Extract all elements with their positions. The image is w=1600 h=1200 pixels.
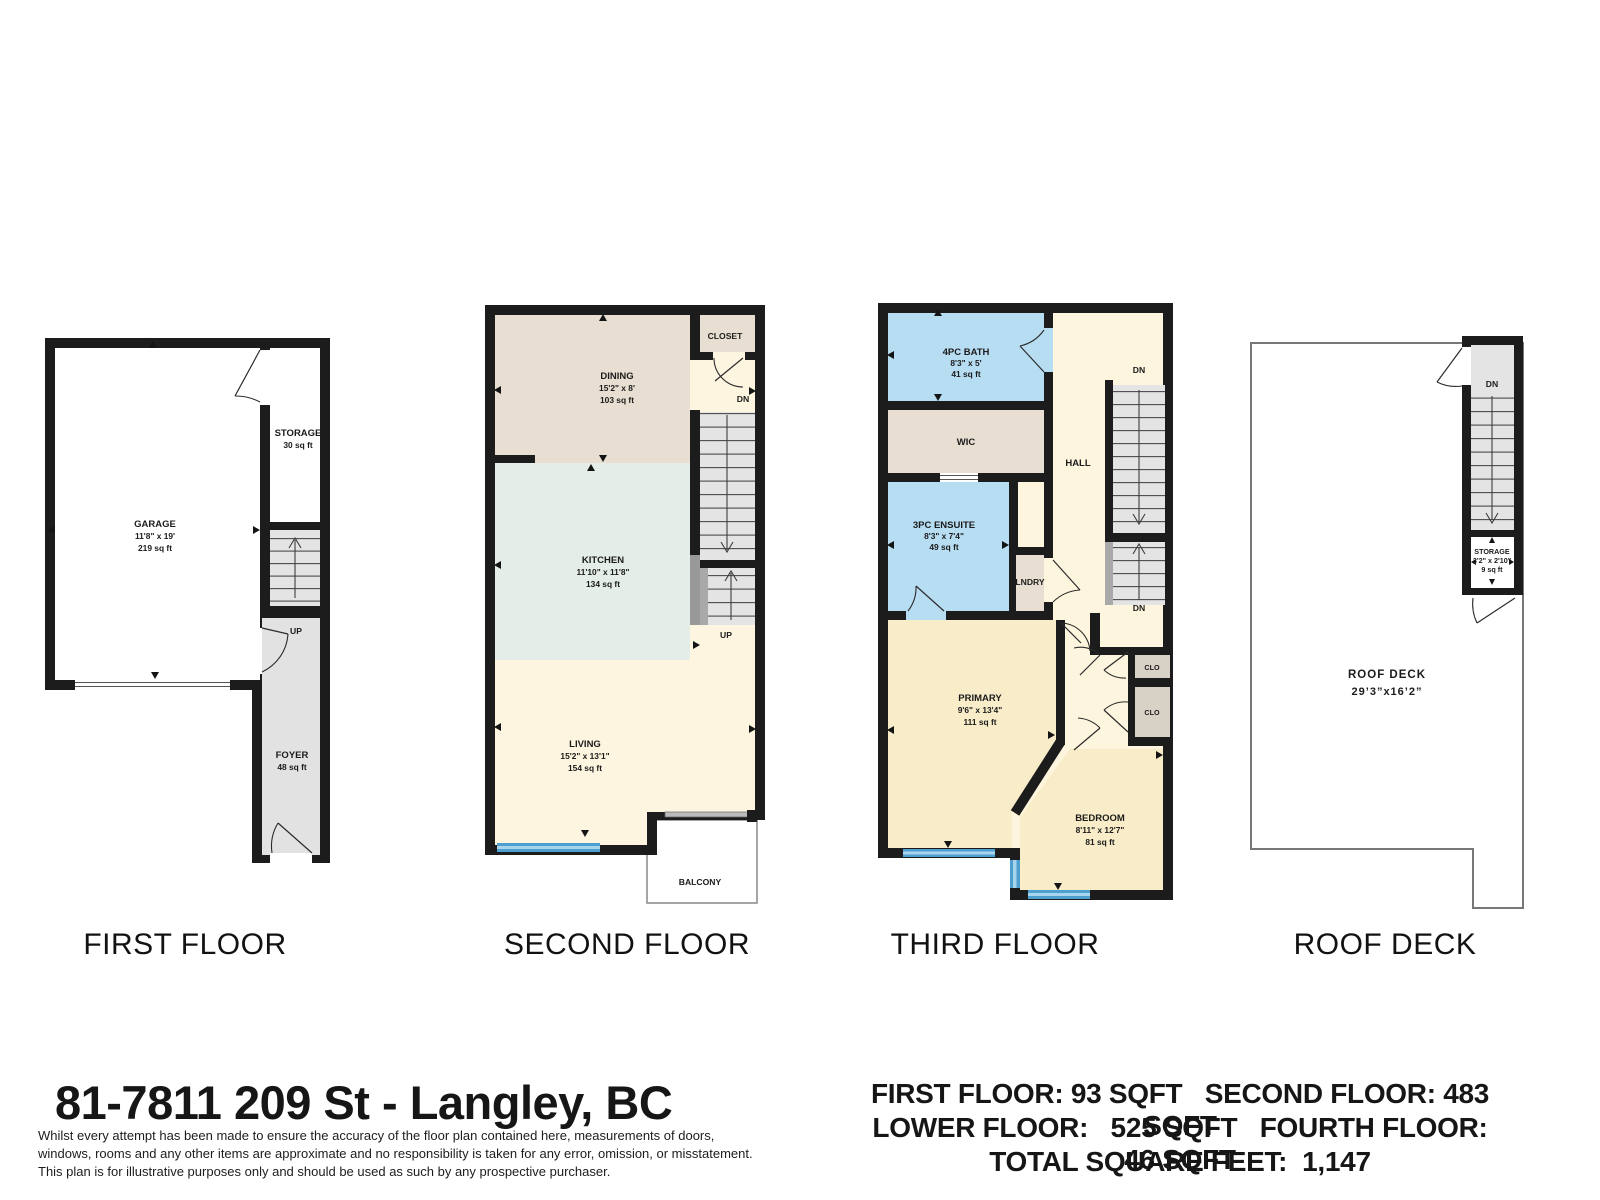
floor-plan-page: { "colors": { "wall": "#1c1c1c", "dining… xyxy=(0,0,1600,1200)
third-floor-title: THIRD FLOOR xyxy=(825,928,1165,962)
kitchen-label: KITCHEN xyxy=(582,555,624,566)
laundry-door-opening xyxy=(1044,558,1053,602)
property-address: 81-7811 209 St - Langley, BC xyxy=(55,1075,672,1130)
window xyxy=(497,846,600,849)
bath-area: 41 sq ft xyxy=(951,369,981,379)
roof-deck-title: ROOF DECK xyxy=(1215,928,1555,962)
garage-label: GARAGE xyxy=(134,519,176,530)
storage-area: 30 sq ft xyxy=(283,440,313,450)
foyer-room xyxy=(262,618,320,855)
closet-wall xyxy=(1128,737,1173,746)
interior-wall xyxy=(1100,647,1173,655)
up-label: UP xyxy=(290,626,302,636)
garage-area: 219 sq ft xyxy=(138,543,172,553)
roof-deck-label: ROOF DECK xyxy=(1348,669,1426,681)
laundry-label: LNDRY xyxy=(1015,577,1045,587)
stair-edge xyxy=(1105,542,1113,605)
bedroom-area: 81 sq ft xyxy=(1085,837,1115,847)
wic-slider-opening xyxy=(940,473,978,482)
interior-wall xyxy=(1009,482,1018,555)
kitchen-dims: 11'10" x 11'8" xyxy=(577,567,630,577)
bath-dims: 8'3" x 5' xyxy=(950,358,981,368)
roof-deck-dims: 29’3”x16’2” xyxy=(1352,686,1423,698)
window xyxy=(903,852,995,855)
primary-label: PRIMARY xyxy=(958,693,1002,704)
living-area: 154 sq ft xyxy=(568,763,602,773)
garage-dims: 11'8" x 19' xyxy=(135,531,175,541)
roof-storage-dims: 3'2" x 2'10" xyxy=(1473,556,1511,565)
dn-label: DN xyxy=(737,394,749,404)
closet-door-opening xyxy=(713,352,745,360)
stair-wall xyxy=(1105,533,1165,542)
foyer-area: 48 sq ft xyxy=(277,762,307,772)
kitchen-area: 134 sq ft xyxy=(586,579,620,589)
balcony xyxy=(647,820,757,903)
storage-label: STORAGE xyxy=(275,428,322,439)
stair-wall xyxy=(700,560,755,568)
first-floor-plan: GARAGE 11'8" x 19' 219 sq ft STORAGE 30 … xyxy=(45,338,330,863)
stair-edge xyxy=(690,555,700,625)
garage-room xyxy=(55,348,260,680)
interior-wall xyxy=(888,401,1044,410)
roof-storage-area: 9 sq ft xyxy=(1481,565,1503,574)
stair-wall xyxy=(1105,380,1113,533)
stair-edge xyxy=(700,568,708,625)
up-label: UP xyxy=(720,630,732,640)
window xyxy=(1013,860,1017,888)
first-floor-title: FIRST FLOOR xyxy=(15,928,355,962)
dining-dims: 15'2" x 8' xyxy=(599,383,635,393)
closet-wall xyxy=(1128,678,1173,687)
foyer-label: FOYER xyxy=(276,750,309,761)
entry-door-opening xyxy=(270,853,312,863)
ensuite-label: 3PC ENSUITE xyxy=(913,520,975,531)
dining-area: 103 sq ft xyxy=(600,395,634,405)
third-floor-plan: 4PC BATH 8'3" x 5' 41 sq ft WIC 3PC ENSU… xyxy=(878,300,1178,908)
closet-wall xyxy=(1128,687,1135,737)
sliding-door-icon xyxy=(665,812,749,817)
dn-label: DN xyxy=(1133,365,1145,375)
ensuite-dims: 8'3" x 7'4" xyxy=(924,531,964,541)
window xyxy=(1028,893,1090,896)
garage-door-opening xyxy=(75,680,230,690)
dining-room xyxy=(495,315,690,463)
wall-stub xyxy=(747,810,757,822)
disclaimer-line: This plan is for illustrative purposes o… xyxy=(38,1164,610,1179)
dn-label: DN xyxy=(1133,603,1145,613)
foyer-door-opening xyxy=(250,628,262,674)
ensuite-door-opening xyxy=(906,611,946,620)
second-floor-plan: CLOSET DN UP DINING 15'2" x 8' 103 sq ft… xyxy=(485,305,777,910)
bedroom-label: BEDROOM xyxy=(1075,813,1125,824)
hall-label: HALL xyxy=(1065,458,1091,469)
interior-wall xyxy=(1056,620,1065,745)
primary-area: 111 sq ft xyxy=(963,717,996,727)
dn-label: DN xyxy=(1486,379,1498,389)
storage-door-opening xyxy=(260,350,270,405)
roof-deck-plan: DN STORAGE 3'2" x 2'10" 9 sq ft ROOF DEC… xyxy=(1245,330,1540,915)
deck-door-opening xyxy=(1462,347,1471,385)
disclaimer-line: windows, rooms and any other items are a… xyxy=(38,1146,753,1161)
sqft-summary-line: TOTAL SQUARE FEET: 1,147 xyxy=(855,1146,1505,1178)
closet-wall xyxy=(1128,655,1135,678)
closet-label: CLO xyxy=(1144,663,1160,672)
primary-dims: 9'6" x 13'4" xyxy=(958,705,1003,715)
second-floor-title: SECOND FLOOR xyxy=(457,928,797,962)
ensuite-area: 49 sq ft xyxy=(929,542,959,552)
wic-label: WIC xyxy=(957,437,976,448)
roof-storage-label: STORAGE xyxy=(1474,547,1510,556)
stair-wall xyxy=(1471,530,1514,537)
bath-door-opening xyxy=(1044,328,1053,372)
living-label: LIVING xyxy=(569,739,601,750)
bath-label: 4PC BATH xyxy=(943,347,990,358)
bedroom-dims: 8'11" x 12'7" xyxy=(1076,825,1125,835)
closet-label: CLOSET xyxy=(708,331,744,341)
balcony-label: BALCONY xyxy=(679,877,722,887)
dining-label: DINING xyxy=(600,371,633,382)
disclaimer-line: Whilst every attempt has been made to en… xyxy=(38,1128,714,1143)
living-dims: 15'2" x 13'1" xyxy=(560,751,609,761)
interior-wall xyxy=(495,455,535,463)
closet-label: CLO xyxy=(1144,708,1160,717)
